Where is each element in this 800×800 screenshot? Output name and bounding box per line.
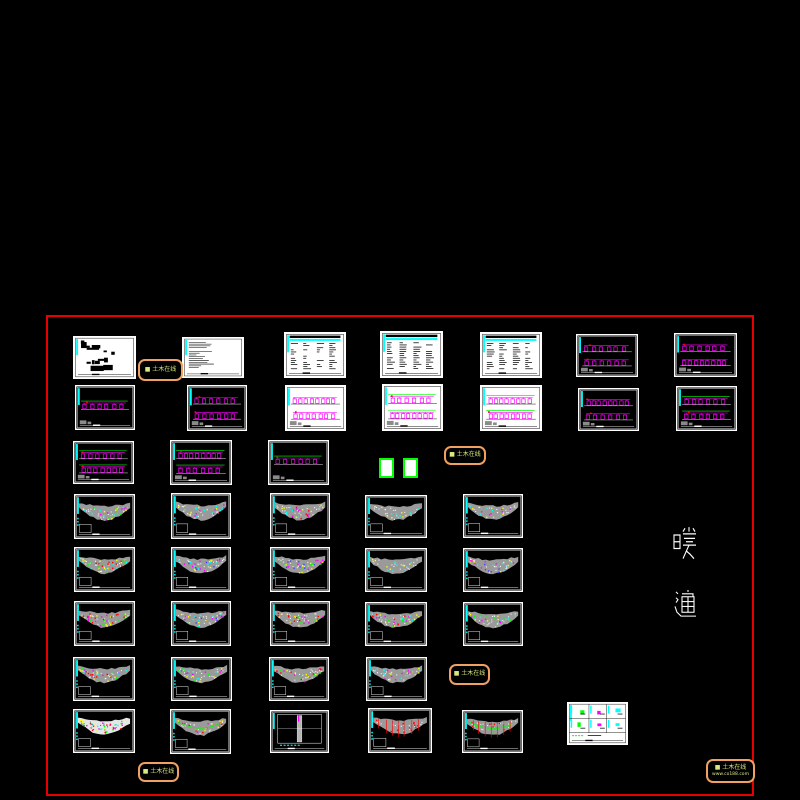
watermark-stamp: ■ 土木在线 — [138, 762, 179, 782]
drawing-sheet-r2c6[interactable] — [578, 388, 639, 431]
drawing-sheet-r8c1[interactable] — [73, 709, 135, 753]
drawing-sheet-r3c1[interactable] — [73, 441, 134, 484]
drawing-sheet-r1c1[interactable] — [73, 336, 136, 379]
drawing-sheet-r2c7[interactable] — [676, 386, 737, 431]
drawing-sheet-r6c1[interactable] — [74, 601, 135, 646]
drawing-sheet-r5c1[interactable] — [74, 547, 135, 592]
drawing-sheet-r2c4[interactable] — [382, 384, 443, 431]
hvac-character — [673, 589, 697, 620]
drawing-sheet-r6c2[interactable] — [171, 601, 231, 646]
drawing-sheet-r2c2[interactable] — [187, 385, 247, 431]
watermark-text: ■ 土木在线 — [715, 765, 747, 772]
drawing-sheet-r5c2[interactable] — [171, 547, 231, 592]
watermark-stamp: ■ 土木在线 — [444, 446, 486, 465]
drawing-sheet-r5c4[interactable] — [365, 548, 427, 592]
watermark-stamp: ■ 土木在线 — [138, 359, 183, 381]
drawing-sheet-r4c1[interactable] — [74, 494, 135, 539]
green-outline-box[interactable] — [379, 458, 394, 478]
drawing-sheet-r7c3[interactable] — [269, 657, 329, 701]
drawing-sheet-r2c5[interactable] — [480, 385, 542, 431]
drawing-sheet-r1c2[interactable] — [182, 337, 244, 378]
green-outline-box[interactable] — [403, 458, 418, 478]
drawing-sheet-r6c4[interactable] — [365, 602, 427, 646]
drawing-sheet-r8c6[interactable] — [567, 702, 628, 745]
drawing-sheet-r4c3[interactable] — [270, 493, 330, 539]
watermark-text: ■ 土木在线 — [143, 769, 175, 776]
drawing-sheet-r1c7[interactable] — [674, 333, 737, 377]
hvac-character — [673, 526, 697, 562]
drawing-sheet-r8c5[interactable] — [462, 710, 523, 753]
drawing-sheet-r2c1[interactable] — [75, 385, 135, 430]
drawing-sheet-r7c1[interactable] — [73, 657, 135, 701]
watermark-text: ■ 土木在线 — [454, 671, 486, 678]
drawing-sheet-r8c2[interactable] — [170, 709, 231, 754]
drawing-sheet-r8c3[interactable] — [270, 710, 329, 753]
drawing-sheet-r6c5[interactable] — [463, 602, 523, 646]
drawing-sheet-r5c5[interactable] — [463, 548, 523, 592]
watermark-text: ■ 土木在线 — [449, 452, 481, 459]
drawing-sheet-r2c3[interactable] — [285, 385, 346, 431]
drawing-sheet-r1c3[interactable] — [284, 332, 346, 378]
drawing-sheet-r8c4[interactable] — [368, 708, 432, 753]
drawing-sheet-r1c6[interactable] — [576, 334, 638, 377]
drawing-sheet-r3c3[interactable] — [268, 440, 329, 485]
drawing-sheet-r4c5[interactable] — [463, 494, 523, 538]
drawing-sheet-r1c4[interactable] — [380, 331, 443, 378]
drawing-sheet-r1c5[interactable] — [480, 332, 542, 378]
drawing-sheet-r4c4[interactable] — [365, 495, 427, 538]
drawing-sheet-r7c2[interactable] — [171, 657, 232, 701]
watermark-text: www.co188.com — [712, 772, 749, 777]
drawing-sheet-r3c2[interactable] — [170, 440, 232, 485]
drawing-sheet-r7c4[interactable] — [366, 657, 427, 701]
watermark-stamp: ■ 土木在线www.co188.com — [706, 759, 755, 783]
cad-canvas[interactable]: ■ 土木在线■ 土木在线■ 土木在线■ 土木在线■ 土木在线www.co188.… — [0, 0, 800, 800]
drawing-sheet-r5c3[interactable] — [270, 547, 330, 592]
watermark-stamp: ■ 土木在线 — [449, 664, 490, 685]
watermark-text: ■ 土木在线 — [145, 367, 177, 374]
drawing-sheet-r6c3[interactable] — [270, 601, 330, 646]
drawing-sheet-r4c2[interactable] — [171, 493, 231, 539]
